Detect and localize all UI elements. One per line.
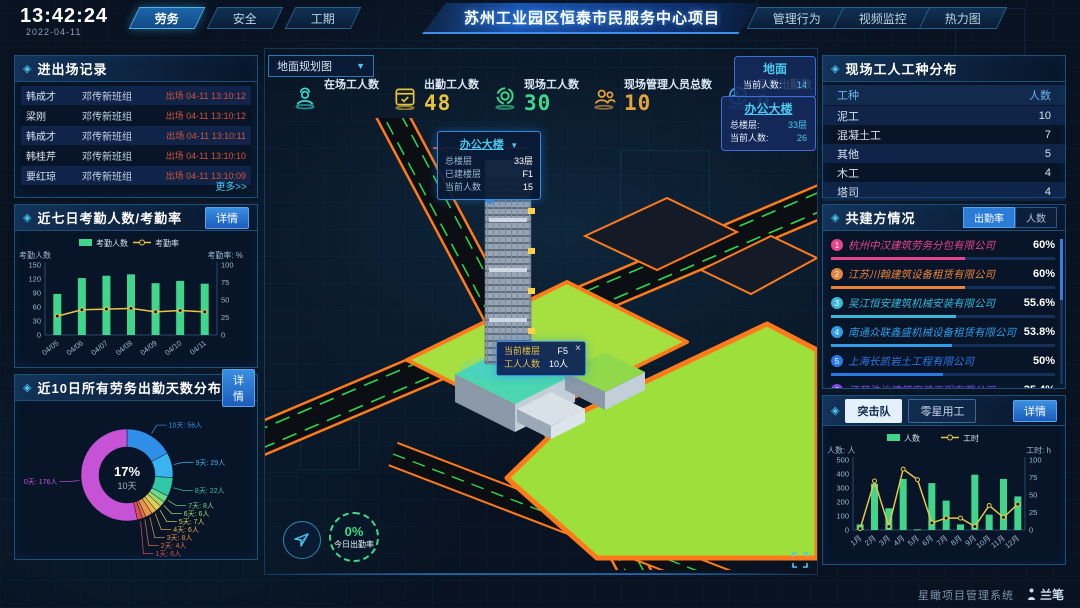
partner-rate-bar-fill bbox=[831, 286, 965, 289]
svg-text:3天: 8人: 3天: 8人 bbox=[167, 534, 193, 542]
tab-casual-labor[interactable]: 零星用工 bbox=[908, 399, 976, 423]
partner-rate-bar-fill bbox=[831, 344, 952, 347]
attendance-chart-panel: ◈ 近七日考勤人数/考勤率 详情 考勤人数考勤率考勤人数考勤率: %030609… bbox=[14, 204, 258, 368]
svg-text:200: 200 bbox=[836, 498, 849, 507]
svg-text:100: 100 bbox=[1029, 456, 1042, 465]
worker-type-row: 其他5 bbox=[823, 144, 1065, 163]
ground-card: 地面 当前人数:14 bbox=[734, 56, 816, 98]
svg-text:8月: 8月 bbox=[949, 533, 964, 547]
worker-type-row: 混凝土工7 bbox=[823, 125, 1065, 144]
gauge-value: 0% bbox=[345, 525, 364, 539]
worker-type: 泥工 bbox=[837, 108, 1011, 124]
clock-date: 2022-04-11 bbox=[26, 27, 81, 37]
layer-select-dropdown[interactable]: 地面规划图 ▼ bbox=[268, 55, 374, 77]
svg-text:4月: 4月 bbox=[892, 533, 907, 547]
svg-text:100: 100 bbox=[221, 261, 234, 270]
svg-text:2天: 4人: 2天: 4人 bbox=[161, 542, 187, 550]
attendance-days-donut-chart: 10天: 56人9天: 29人8天: 22人7天: 8人6天: 6人5天: 7人… bbox=[15, 401, 247, 559]
tooltip-value: F1 bbox=[522, 168, 533, 181]
rank-badge: 6 bbox=[831, 384, 843, 389]
partner-rate-bar-fill bbox=[831, 373, 943, 376]
svg-text:0: 0 bbox=[221, 331, 225, 340]
squad-panel: ◈ 突击队 零星用工 详情 人数工时人数: 人工时: h010020030040… bbox=[822, 395, 1066, 565]
svg-text:04/11: 04/11 bbox=[188, 338, 208, 356]
partner-rate: 35.4% bbox=[1024, 384, 1055, 389]
svg-text:考勤人数: 考勤人数 bbox=[96, 238, 128, 248]
ground-card-title[interactable]: 地面 bbox=[743, 60, 807, 77]
svg-text:300: 300 bbox=[836, 484, 849, 493]
svg-text:4天: 6人: 4天: 6人 bbox=[173, 526, 199, 534]
crew-name: 邓传新班组 bbox=[82, 148, 166, 163]
diamond-icon: ◈ bbox=[831, 404, 839, 417]
top-bar: 13:42:24 2022-04-11 劳务 安全 工期 苏州工业园区恒泰市民服… bbox=[0, 0, 1080, 44]
crew-name: 邓传新班组 bbox=[82, 128, 166, 143]
worker-count: 5 bbox=[1011, 148, 1051, 160]
partner-row-line: 2江苏川翰建筑设备租赁有限公司60% bbox=[831, 264, 1055, 284]
svg-text:75: 75 bbox=[221, 278, 229, 287]
svg-text:0天: 176人: 0天: 176人 bbox=[24, 478, 57, 486]
partner-rate-bar bbox=[831, 344, 1055, 347]
worker-type: 塔司 bbox=[837, 184, 1011, 200]
rank-badge: 5 bbox=[831, 355, 843, 367]
rank-badge: 3 bbox=[831, 297, 843, 309]
svg-text:考勤率: 考勤率 bbox=[155, 238, 179, 248]
tooltip-value: 33层 bbox=[514, 155, 533, 168]
tab-management-behavior[interactable]: 管理行为 bbox=[747, 7, 848, 29]
fullscreen-button[interactable] bbox=[791, 551, 809, 569]
detail-button[interactable]: 详情 bbox=[1013, 400, 1057, 422]
svg-text:6天: 6人: 6天: 6人 bbox=[184, 510, 210, 518]
worker-count: 4 bbox=[1011, 167, 1051, 179]
gauge-label: 今日出勤率 bbox=[334, 539, 374, 550]
worker-types-panel: ◈ 现场工人工种分布 工种 人数 泥工10混凝土工7其他5木工4塔司4 bbox=[822, 55, 1066, 198]
worker-name: 韩成才 bbox=[26, 88, 82, 103]
partner-name: 南通众联鑫盛机械设备租赁有限公司 bbox=[848, 325, 1019, 340]
entry-exit-panel: ◈ 进出场记录 韩成才邓传新班组出场 04-11 13:10:12梁刚邓传新班组… bbox=[14, 55, 258, 198]
partner-rate-bar bbox=[831, 257, 1055, 260]
card-value: 33层 bbox=[788, 119, 807, 132]
partner-row[interactable]: 2江苏川翰建筑设备租赁有限公司60% bbox=[831, 264, 1055, 293]
stat-label: 出勤工人数 bbox=[424, 76, 479, 92]
svg-text:04/08: 04/08 bbox=[114, 338, 134, 357]
squad-bar-line-chart: 人数工时人数: 人工时: h01002003004005000255075100… bbox=[823, 426, 1055, 562]
partner-row[interactable]: 3吴江恒安建筑机械安装有限公司55.6% bbox=[831, 293, 1055, 322]
column-count: 人数 bbox=[1011, 87, 1051, 103]
diamond-icon: ◈ bbox=[23, 211, 31, 224]
worker-name: 梁刚 bbox=[26, 108, 82, 123]
entry-exit-row: 韩桂芹邓传新班组出场 04-11 13:10:10 bbox=[21, 146, 251, 165]
layer-select-value: 地面规划图 bbox=[277, 58, 332, 74]
tab-heatmap[interactable]: 热力图 bbox=[919, 7, 1008, 29]
diamond-icon: ◈ bbox=[23, 62, 31, 75]
vendor-logo: 兰笔 bbox=[1026, 586, 1064, 603]
svg-text:04/09: 04/09 bbox=[138, 338, 158, 357]
navigation-arrow-icon bbox=[292, 530, 312, 550]
tab-headcount[interactable]: 人数 bbox=[1015, 207, 1057, 228]
worker-type: 木工 bbox=[837, 165, 1011, 181]
svg-text:0: 0 bbox=[845, 526, 849, 535]
tooltip-value: 15 bbox=[523, 181, 533, 194]
chevron-down-icon[interactable]: ▼ bbox=[510, 141, 518, 150]
svg-text:30: 30 bbox=[33, 317, 41, 326]
stat-onsite-workers: 在场工人数 bbox=[292, 76, 379, 114]
exit-time: 出场 04-11 13:10:11 bbox=[166, 129, 246, 142]
partners-panel: ◈ 共建方情况 出勤率 人数 1杭州中汉建筑劳务分包有限公司60%2江苏川翰建筑… bbox=[822, 204, 1066, 389]
attendance-days-panel: ◈ 近10日所有劳务出勤天数分布 详情 10天: 56人9天: 29人8天: 2… bbox=[14, 374, 258, 560]
worker-type-row: 塔司4 bbox=[823, 182, 1065, 201]
partner-rate-bar-fill bbox=[831, 315, 956, 318]
panel-title: 近10日所有劳务出勤天数分布 bbox=[37, 378, 221, 397]
page-title: 苏州工业园区恒泰市民服务中心项目 bbox=[422, 3, 762, 34]
partner-name: 吴江恒安建筑机械安装有限公司 bbox=[848, 296, 1019, 311]
entry-exit-row: 韩成才邓传新班组出场 04-11 13:10:12 bbox=[21, 86, 251, 105]
stat-value: 10 bbox=[624, 92, 712, 114]
svg-text:120: 120 bbox=[28, 275, 41, 284]
building-tooltip-title[interactable]: 办公大楼 bbox=[460, 139, 504, 151]
scrollbar[interactable] bbox=[1060, 239, 1063, 384]
exit-time: 出场 04-11 13:10:12 bbox=[166, 89, 246, 102]
partner-row-line: 6江苏浩诒建筑安装工程有限公司35.4% bbox=[831, 380, 1055, 389]
tooltip-label: 当前人数 bbox=[445, 181, 481, 194]
stat-managers-total: 现场管理人员总数 10 bbox=[592, 76, 712, 114]
svg-text:7月: 7月 bbox=[935, 533, 950, 547]
svg-text:3月: 3月 bbox=[877, 533, 892, 547]
diamond-icon: ◈ bbox=[23, 381, 31, 394]
clock-time: 13:42:24 bbox=[20, 5, 108, 28]
svg-text:04/05: 04/05 bbox=[40, 338, 60, 357]
partner-rate: 53.8% bbox=[1024, 326, 1055, 338]
svg-text:1月: 1月 bbox=[849, 533, 864, 547]
worker-count: 7 bbox=[1011, 129, 1051, 141]
svg-text:500: 500 bbox=[836, 456, 849, 465]
partner-rate-bar-fill bbox=[831, 257, 965, 260]
dashboard-root: { "header": { "time": "13:42:24", "date"… bbox=[0, 0, 1080, 608]
tooltip-label: 已建楼层 bbox=[445, 168, 481, 181]
attendance-bar-line-chart: 考勤人数考勤率考勤人数考勤率: %03060901201500255075100… bbox=[15, 231, 247, 367]
entry-exit-row: 韩成才邓传新班组出场 04-11 13:10:11 bbox=[21, 126, 251, 145]
partner-rate: 60% bbox=[1033, 239, 1055, 251]
svg-text:90: 90 bbox=[33, 289, 41, 298]
svg-text:9天: 29人: 9天: 29人 bbox=[196, 459, 226, 467]
svg-text:100: 100 bbox=[836, 512, 849, 521]
partner-rate-bar bbox=[831, 315, 1055, 318]
partner-rate: 55.6% bbox=[1024, 297, 1055, 309]
building-tooltip: 办公大楼 ▼ 总楼层33层 已建楼层F1 当前人数15 bbox=[437, 131, 541, 200]
stat-label: 现场工人数 bbox=[524, 76, 579, 92]
partner-rate: 50% bbox=[1033, 355, 1055, 367]
partner-row-line: 5上海长凯岩土工程有限公司50% bbox=[831, 351, 1055, 371]
svg-text:25: 25 bbox=[221, 313, 229, 322]
tab-safety[interactable]: 安全 bbox=[207, 7, 284, 29]
svg-text:5天: 7人: 5天: 7人 bbox=[179, 518, 205, 526]
worker-count: 4 bbox=[1011, 186, 1051, 198]
entry-exit-row: 梁刚邓传新班组出场 04-11 13:10:12 bbox=[21, 106, 251, 125]
crew-name: 邓传新班组 bbox=[82, 88, 166, 103]
partner-name: 江苏浩诒建筑安装工程有限公司 bbox=[848, 383, 1019, 390]
partner-row[interactable]: 6江苏浩诒建筑安装工程有限公司35.4% bbox=[831, 380, 1055, 389]
table-header: 工种 人数 bbox=[823, 85, 1065, 105]
worker-type-row: 泥工10 bbox=[823, 106, 1065, 125]
vendor-logo-icon bbox=[1026, 588, 1037, 601]
diamond-icon: ◈ bbox=[831, 211, 839, 224]
panel-title: 近七日考勤人数/考勤率 bbox=[37, 208, 182, 227]
worker-type: 其他 bbox=[837, 146, 1011, 162]
stat-label: 现场管理人员总数 bbox=[624, 76, 712, 92]
svg-text:8天: 22人: 8天: 22人 bbox=[195, 487, 225, 495]
worker-name: 韩成才 bbox=[26, 128, 82, 143]
svg-text:12月: 12月 bbox=[1003, 533, 1021, 550]
detail-button[interactable]: 详情 bbox=[205, 207, 249, 229]
tooltip-label: 总楼层 bbox=[445, 155, 472, 168]
partner-name: 杭州中汉建筑劳务分包有限公司 bbox=[848, 238, 1028, 253]
people-icon bbox=[592, 84, 618, 110]
rank-badge: 4 bbox=[831, 326, 843, 338]
svg-text:10天: 10天 bbox=[117, 481, 136, 491]
panel-title: 进出场记录 bbox=[37, 59, 107, 78]
tab-attendance-rate[interactable]: 出勤率 bbox=[963, 207, 1015, 228]
svg-text:考勤人数: 考勤人数 bbox=[19, 250, 51, 260]
tooltip-label: 工人人数 bbox=[504, 358, 540, 371]
calendar-check-icon bbox=[392, 84, 418, 110]
compass-control[interactable] bbox=[283, 521, 321, 559]
tower-card: 办公大楼 总楼层:33层 当前人数:26 bbox=[721, 96, 816, 151]
card-value: 14 bbox=[797, 79, 807, 92]
svg-text:04/10: 04/10 bbox=[163, 338, 183, 357]
svg-text:150: 150 bbox=[28, 261, 41, 270]
svg-text:0: 0 bbox=[1029, 526, 1033, 535]
svg-text:工时: h: 工时: h bbox=[1026, 445, 1051, 455]
worker-name: 韩桂芹 bbox=[26, 148, 82, 163]
svg-text:1天: 6人: 1天: 6人 bbox=[155, 550, 181, 558]
partner-row[interactable]: 5上海长凯岩土工程有限公司50% bbox=[831, 351, 1055, 380]
tooltip-value: 10人 bbox=[549, 358, 568, 371]
svg-text:50: 50 bbox=[221, 296, 229, 305]
stat-value: 30 bbox=[524, 92, 579, 114]
more-link[interactable]: 更多>> bbox=[215, 178, 247, 193]
close-icon[interactable]: × bbox=[575, 343, 581, 354]
chevron-down-icon: ▼ bbox=[356, 61, 365, 71]
svg-text:04/07: 04/07 bbox=[89, 338, 109, 357]
svg-text:考勤率: %: 考勤率: % bbox=[207, 250, 243, 260]
svg-text:60: 60 bbox=[33, 303, 41, 312]
card-label: 当前人数: bbox=[743, 79, 782, 92]
card-value: 26 bbox=[797, 132, 807, 145]
svg-text:人数: 人: 人数: 人 bbox=[827, 445, 855, 455]
stat-site-workers: 现场工人数 30 bbox=[492, 76, 579, 114]
svg-text:50: 50 bbox=[1029, 491, 1037, 500]
floor-tooltip: × 当前楼层F5 工人人数10人 bbox=[496, 341, 586, 376]
svg-text:人数: 人数 bbox=[904, 433, 920, 443]
panel-title: 现场工人工种分布 bbox=[845, 59, 957, 78]
tooltip-value: F5 bbox=[557, 345, 568, 358]
partner-name: 上海长凯岩土工程有限公司 bbox=[848, 354, 1028, 369]
svg-text:400: 400 bbox=[836, 470, 849, 479]
svg-text:25: 25 bbox=[1029, 508, 1037, 517]
footer: 星瞰项目管理系统 兰笔 bbox=[918, 586, 1064, 603]
rank-badge: 1 bbox=[831, 239, 843, 251]
exit-time: 出场 04-11 13:10:12 bbox=[166, 109, 246, 122]
tooltip-label: 当前楼层 bbox=[504, 345, 540, 358]
today-attendance-gauge: 0% 今日出勤率 bbox=[329, 512, 379, 562]
partner-row-line: 4南通众联鑫盛机械设备租赁有限公司53.8% bbox=[831, 322, 1055, 342]
card-label: 总楼层: bbox=[730, 119, 760, 132]
svg-text:2月: 2月 bbox=[863, 533, 878, 547]
partner-rate-bar bbox=[831, 286, 1055, 289]
stat-value: 48 bbox=[424, 92, 479, 114]
gauge-icon bbox=[492, 84, 518, 110]
stat-label: 在场工人数 bbox=[324, 76, 379, 92]
svg-text:75: 75 bbox=[1029, 473, 1037, 482]
svg-text:04/06: 04/06 bbox=[65, 338, 85, 357]
partner-name: 江苏川翰建筑设备租赁有限公司 bbox=[848, 267, 1028, 282]
worker-type: 混凝土工 bbox=[837, 127, 1011, 143]
partner-row-line: 3吴江恒安建筑机械安装有限公司55.6% bbox=[831, 293, 1055, 313]
diamond-icon: ◈ bbox=[831, 62, 839, 75]
svg-text:6月: 6月 bbox=[920, 533, 935, 547]
partner-rate: 60% bbox=[1033, 268, 1055, 280]
tab-video-monitor[interactable]: 视频监控 bbox=[833, 7, 934, 29]
card-label: 当前人数: bbox=[730, 132, 769, 145]
svg-text:7天: 8人: 7天: 8人 bbox=[188, 502, 214, 510]
column-worker-type: 工种 bbox=[837, 87, 1011, 103]
crew-name: 邓传新班组 bbox=[82, 108, 166, 123]
svg-text:5月: 5月 bbox=[906, 533, 921, 547]
partner-row[interactable]: 1杭州中汉建筑劳务分包有限公司60% bbox=[831, 235, 1055, 264]
fullscreen-icon bbox=[791, 551, 809, 569]
tab-labor[interactable]: 劳务 bbox=[129, 7, 206, 29]
worker-icon bbox=[292, 84, 318, 110]
svg-text:工时: 工时 bbox=[963, 433, 979, 443]
system-brand: 星瞰项目管理系统 bbox=[918, 587, 1014, 603]
tower-card-title[interactable]: 办公大楼 bbox=[730, 100, 807, 117]
rank-badge: 2 bbox=[831, 268, 843, 280]
svg-text:10天: 56人: 10天: 56人 bbox=[169, 422, 202, 430]
crew-name: 邓传新班组 bbox=[82, 168, 166, 183]
partner-row-line: 1杭州中汉建筑劳务分包有限公司60% bbox=[831, 235, 1055, 255]
exit-time: 出场 04-11 13:10:10 bbox=[166, 149, 246, 162]
partner-row[interactable]: 4南通众联鑫盛机械设备租赁有限公司53.8% bbox=[831, 322, 1055, 351]
partner-rate-bar bbox=[831, 373, 1055, 376]
tab-schedule[interactable]: 工期 bbox=[285, 7, 362, 29]
worker-name: 要红琼 bbox=[26, 168, 82, 183]
svg-text:17%: 17% bbox=[114, 464, 140, 479]
svg-text:0: 0 bbox=[37, 331, 41, 340]
worker-count: 10 bbox=[1011, 110, 1051, 122]
worker-type-row: 木工4 bbox=[823, 163, 1065, 182]
panel-title: 共建方情况 bbox=[845, 208, 915, 227]
stat-attending-workers: 出勤工人数 48 bbox=[392, 76, 479, 114]
tab-assault-team[interactable]: 突击队 bbox=[845, 399, 902, 423]
